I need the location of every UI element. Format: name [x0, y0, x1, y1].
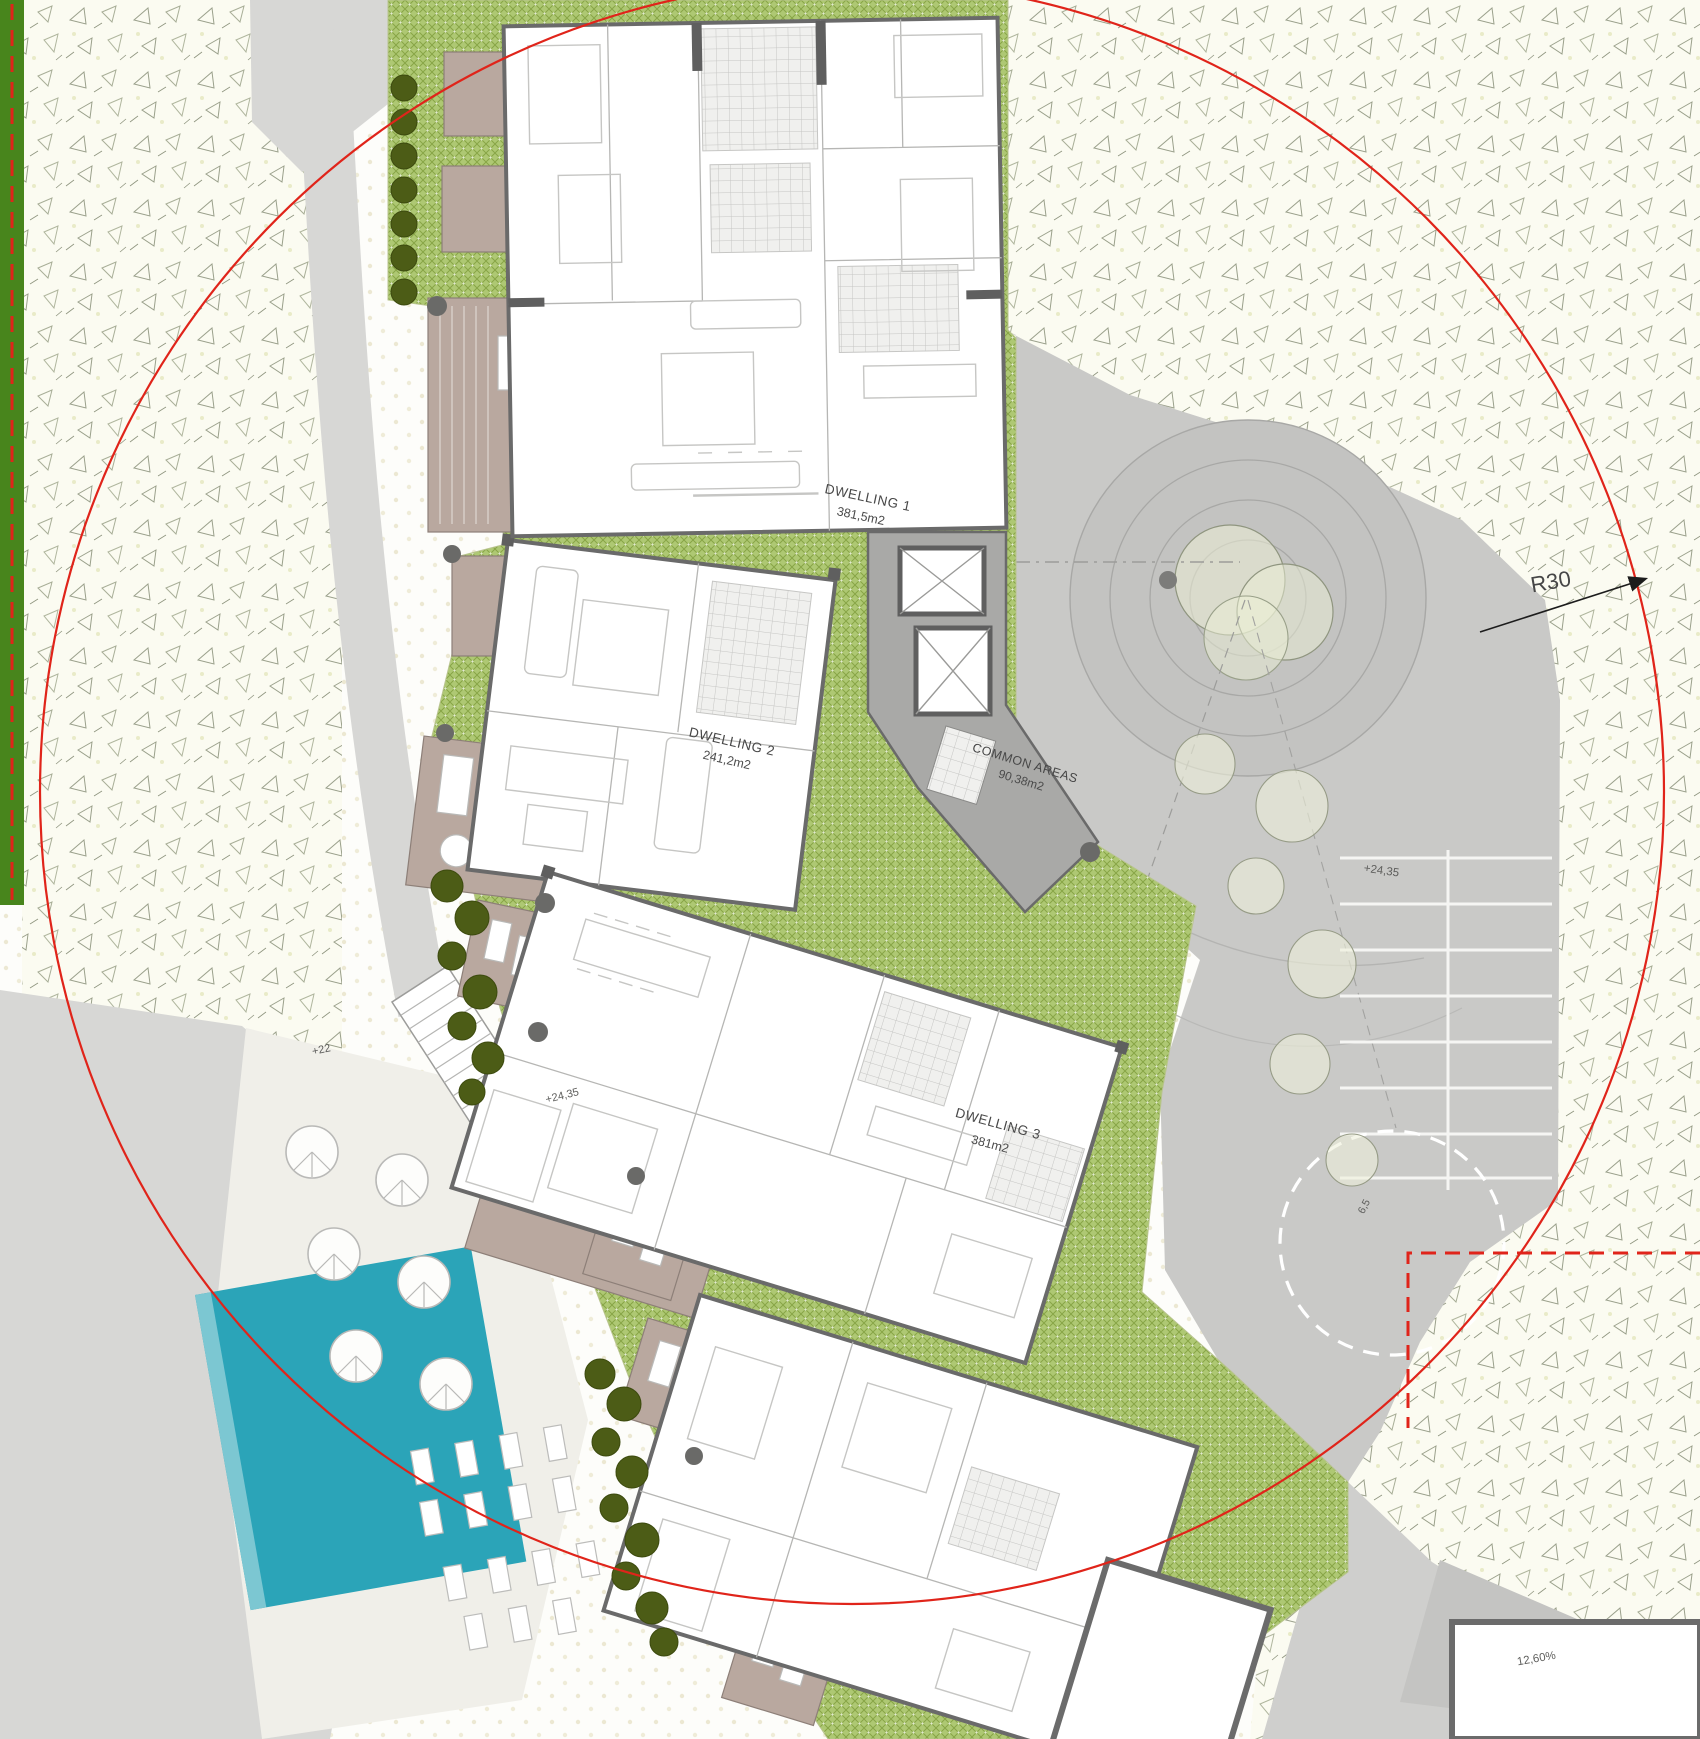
site-plan-stage: DWELLING 1 381,5m2 DWELLING 2 241,2m2 CO… — [0, 0, 1700, 1739]
west-boundary — [0, 0, 24, 905]
terrace-porch-2 — [442, 166, 506, 252]
pool — [195, 1246, 526, 1610]
terrace-porch-1 — [444, 52, 506, 136]
site-plan: DWELLING 1 381,5m2 DWELLING 2 241,2m2 CO… — [0, 0, 1700, 1739]
dwelling1-building — [504, 18, 1007, 537]
dwelling2-building — [462, 527, 841, 910]
elevator-shaft-1 — [900, 548, 984, 614]
plaza-bollard — [1159, 571, 1177, 589]
elevator-shaft-2 — [916, 628, 990, 714]
bottom-building-2 — [1452, 1622, 1700, 1739]
vegetation-right — [1545, 560, 1700, 1260]
